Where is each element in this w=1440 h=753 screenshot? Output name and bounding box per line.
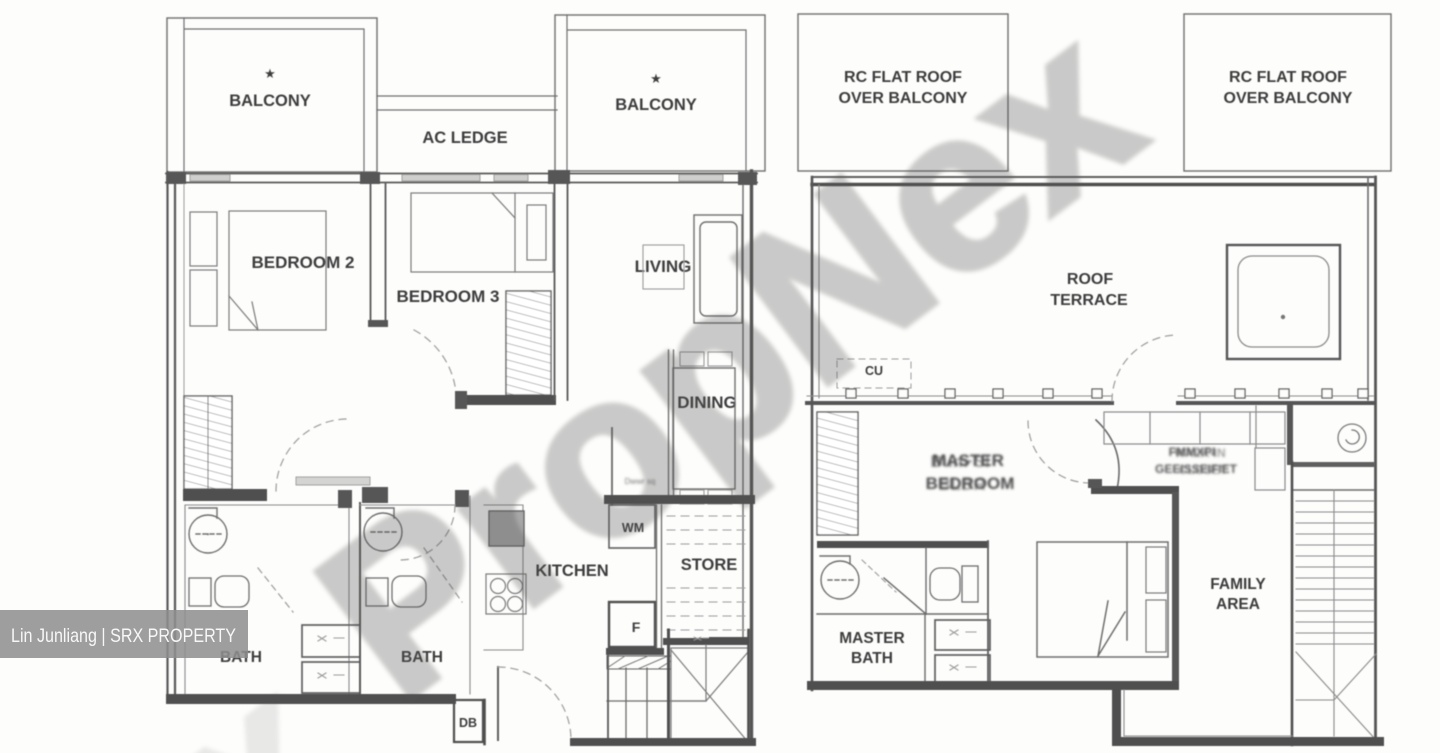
svg-text:★: ★ bbox=[650, 71, 662, 86]
svg-text:FAMILY: FAMILY bbox=[1210, 576, 1266, 593]
svg-text:RC FLAT ROOF: RC FLAT ROOF bbox=[1229, 69, 1347, 86]
svg-text:AC LEDGE: AC LEDGE bbox=[422, 129, 507, 147]
svg-text:ROOF: ROOF bbox=[1067, 271, 1113, 288]
svg-text:BALCONY: BALCONY bbox=[615, 96, 697, 114]
svg-text:Lin Junliang | SRX PROPERTY: Lin Junliang | SRX PROPERTY bbox=[11, 625, 236, 647]
svg-text:★: ★ bbox=[264, 66, 276, 81]
svg-text:BATH: BATH bbox=[851, 650, 893, 667]
svg-text:BALCONY: BALCONY bbox=[229, 92, 311, 110]
svg-text:MASTER: MASTER bbox=[839, 630, 904, 647]
svg-text:F: F bbox=[632, 619, 641, 635]
svg-text:BEDROOM 2: BEDROOM 2 bbox=[252, 253, 355, 272]
svg-text:BLDR: BLDR bbox=[938, 475, 985, 494]
svg-text:BEDROOM 3: BEDROOM 3 bbox=[397, 287, 500, 306]
svg-text:AREA: AREA bbox=[1216, 596, 1260, 613]
svg-text:Bum·SI: Bum·SI bbox=[930, 452, 990, 471]
svg-text:CLOSET: CLOSET bbox=[1179, 463, 1228, 477]
svg-text:WALK-IN: WALK-IN bbox=[1174, 446, 1225, 460]
svg-text:STORE: STORE bbox=[681, 556, 738, 574]
svg-text:OVER BALCONY: OVER BALCONY bbox=[1224, 90, 1353, 107]
svg-text:TERRACE: TERRACE bbox=[1050, 292, 1128, 309]
